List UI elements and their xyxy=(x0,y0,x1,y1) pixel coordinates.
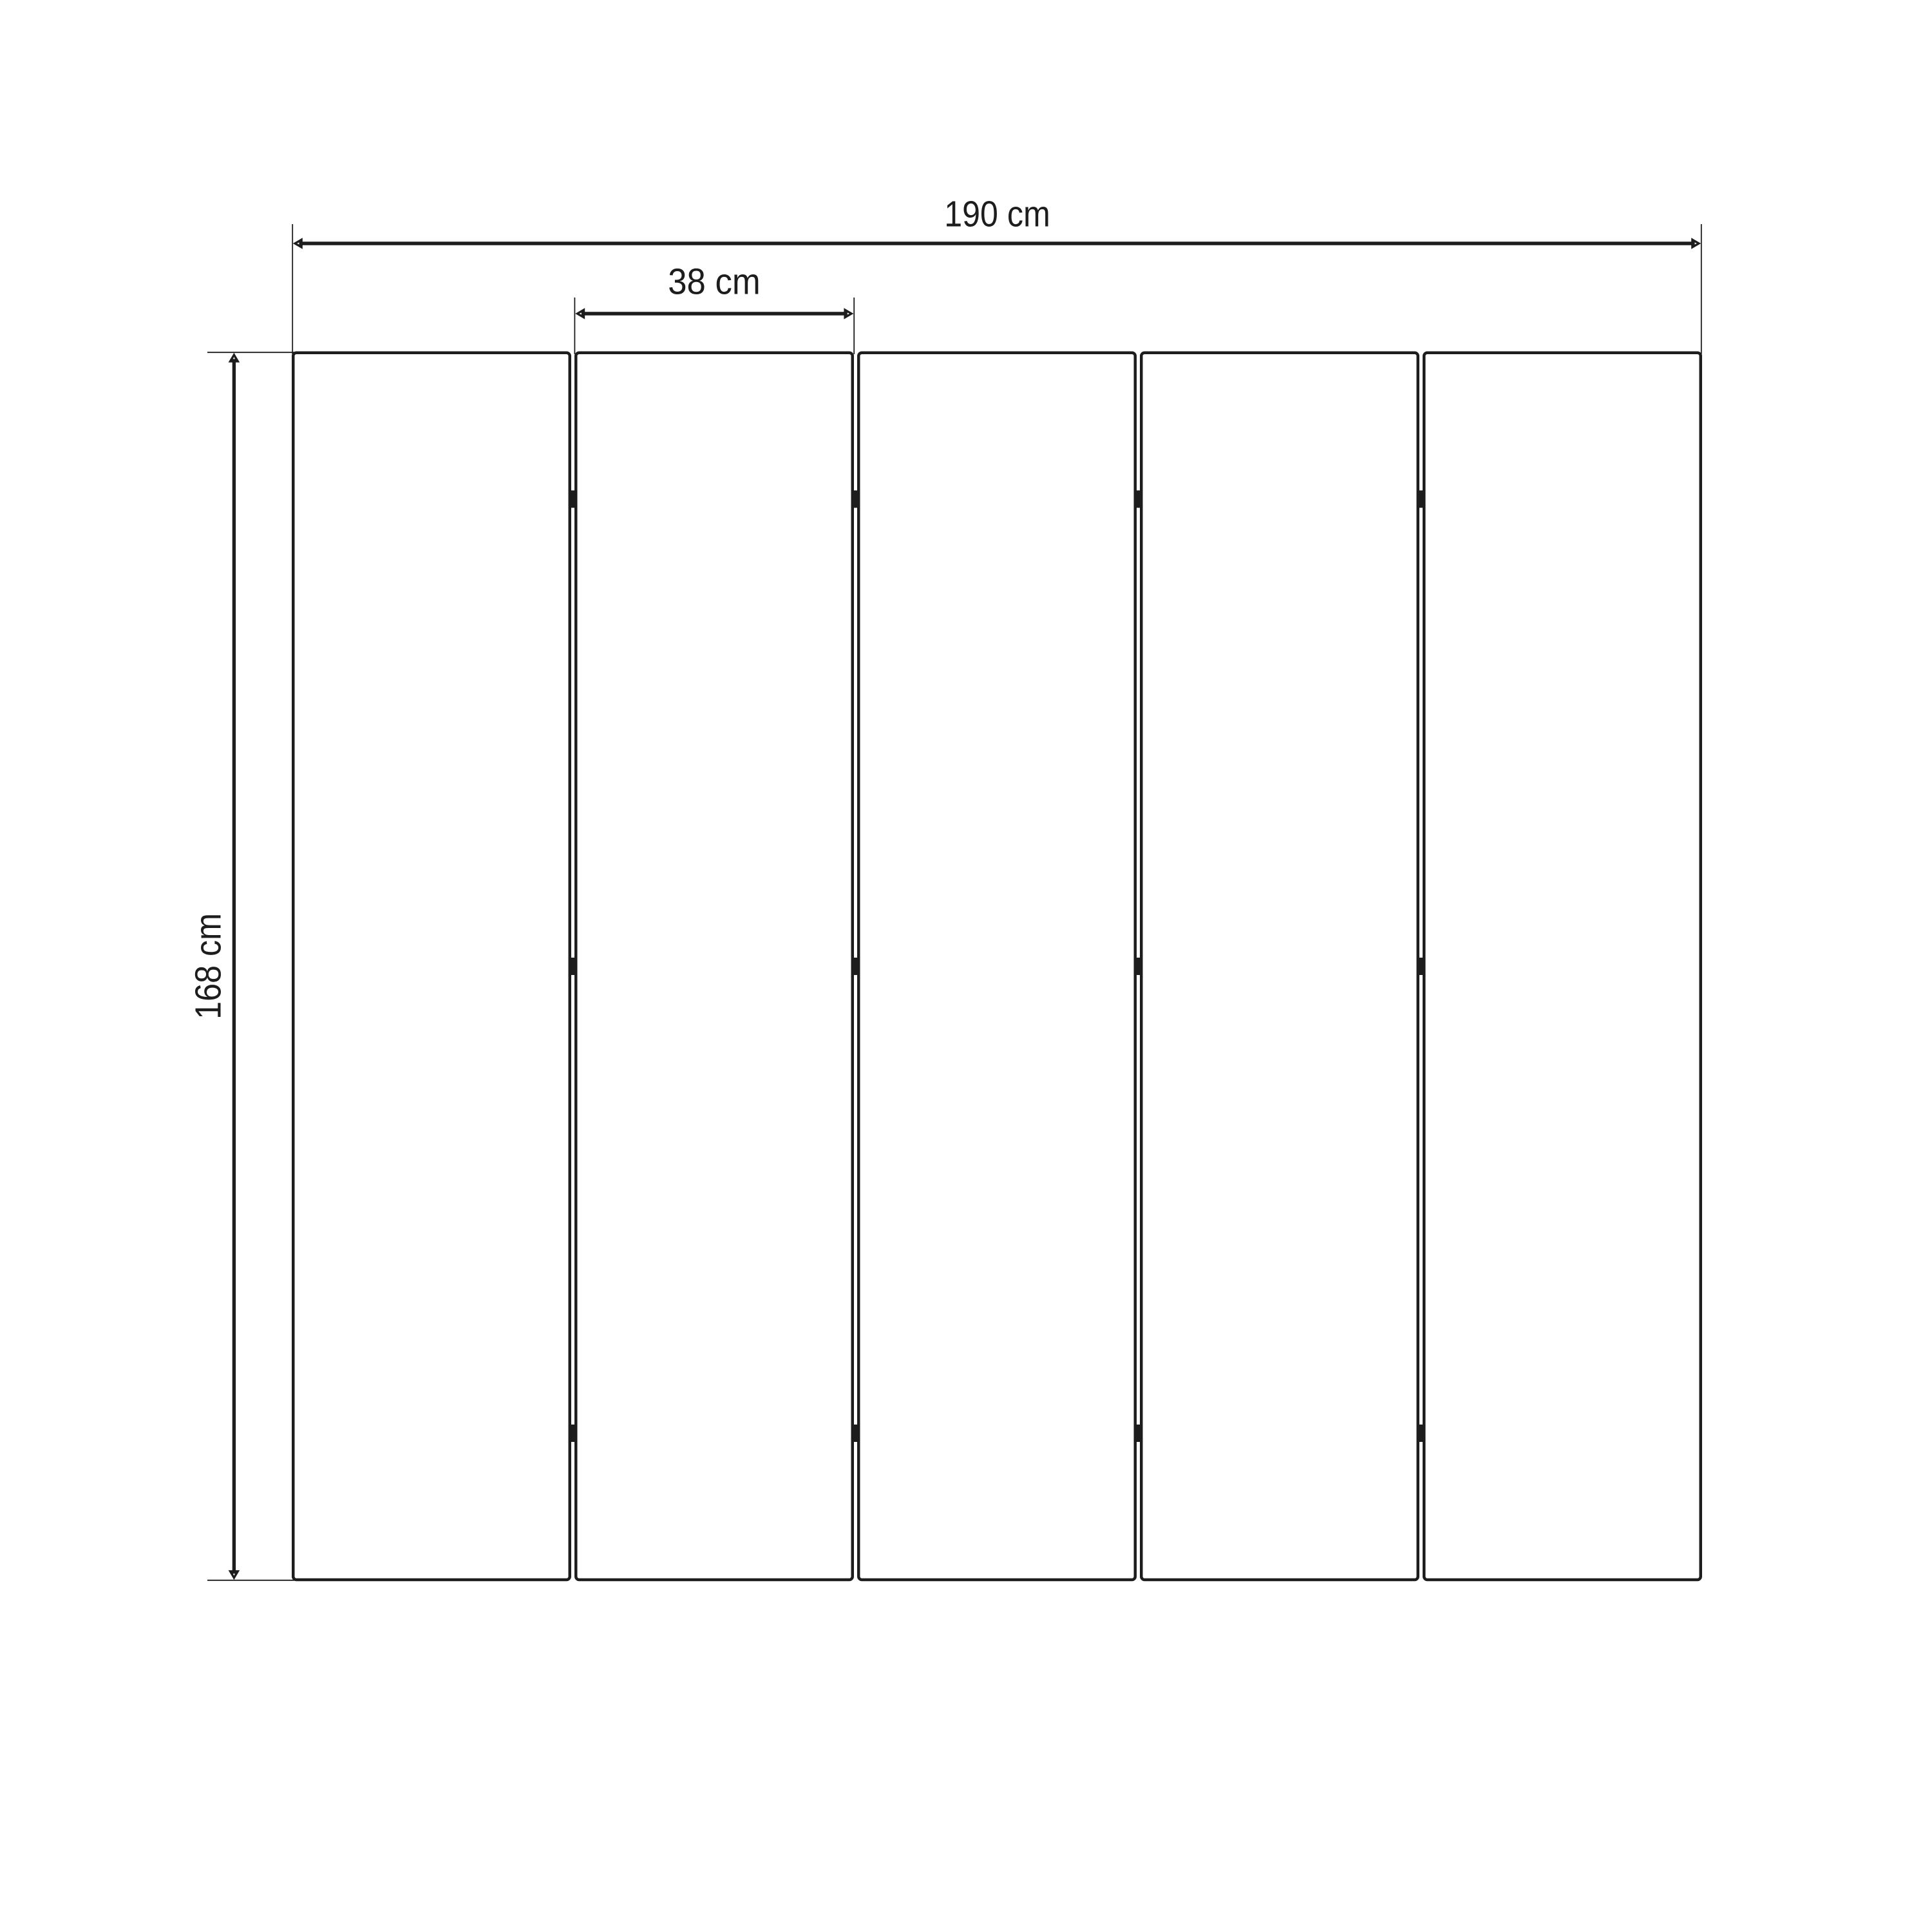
svg-text:190 cm: 190 cm xyxy=(944,194,1050,235)
svg-text:38 cm: 38 cm xyxy=(668,261,761,303)
svg-text:168 cm: 168 cm xyxy=(188,913,229,1019)
